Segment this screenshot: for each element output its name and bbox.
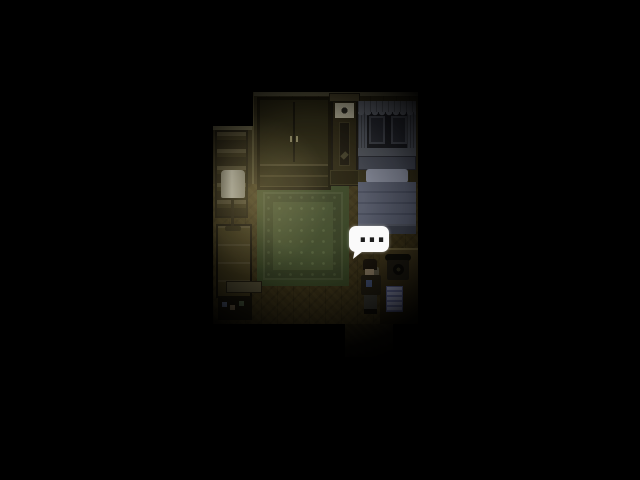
wardrobe-handle bbox=[296, 136, 298, 142]
character-face bbox=[365, 269, 374, 275]
character-clothing-detail bbox=[366, 280, 372, 287]
window-sill bbox=[358, 148, 416, 156]
small-item bbox=[230, 305, 235, 310]
small-bench bbox=[226, 281, 262, 293]
bed-headboard bbox=[358, 156, 416, 170]
curtain-valance bbox=[358, 101, 416, 112]
note-paper bbox=[386, 286, 403, 312]
character-shoes bbox=[364, 309, 377, 314]
ellipsis-icon: ... bbox=[355, 221, 389, 247]
clock-face bbox=[335, 103, 354, 118]
hallway-exit bbox=[345, 324, 393, 357]
floor-lamp-pole bbox=[231, 198, 234, 228]
bed-blanket bbox=[358, 182, 416, 224]
small-item bbox=[222, 302, 227, 307]
clock-crown bbox=[329, 93, 360, 102]
window-pane bbox=[369, 116, 385, 144]
curtain-right bbox=[407, 112, 416, 150]
valance-fringe bbox=[358, 112, 416, 117]
bed-pillow bbox=[366, 169, 408, 183]
character-legs bbox=[364, 295, 377, 309]
speech-bubble: ... bbox=[349, 226, 389, 252]
game-screen[interactable]: ... bbox=[0, 0, 640, 480]
wardrobe-door-gap bbox=[293, 102, 295, 162]
clock-base bbox=[330, 170, 359, 185]
wardrobe bbox=[257, 97, 331, 190]
wall-corner-edge bbox=[252, 92, 254, 188]
window-pane bbox=[391, 116, 407, 144]
wardrobe-drawers bbox=[260, 164, 328, 187]
clock-pendulum-case bbox=[339, 122, 350, 166]
small-items-shelf bbox=[218, 296, 252, 320]
small-item bbox=[239, 301, 244, 306]
floor-lamp-base bbox=[225, 226, 241, 231]
floor-lamp-shade bbox=[221, 170, 245, 198]
patterned-rug bbox=[257, 186, 349, 286]
telephone-dial bbox=[393, 264, 404, 275]
wardrobe-handle bbox=[290, 136, 292, 142]
curtain-left bbox=[358, 112, 367, 150]
